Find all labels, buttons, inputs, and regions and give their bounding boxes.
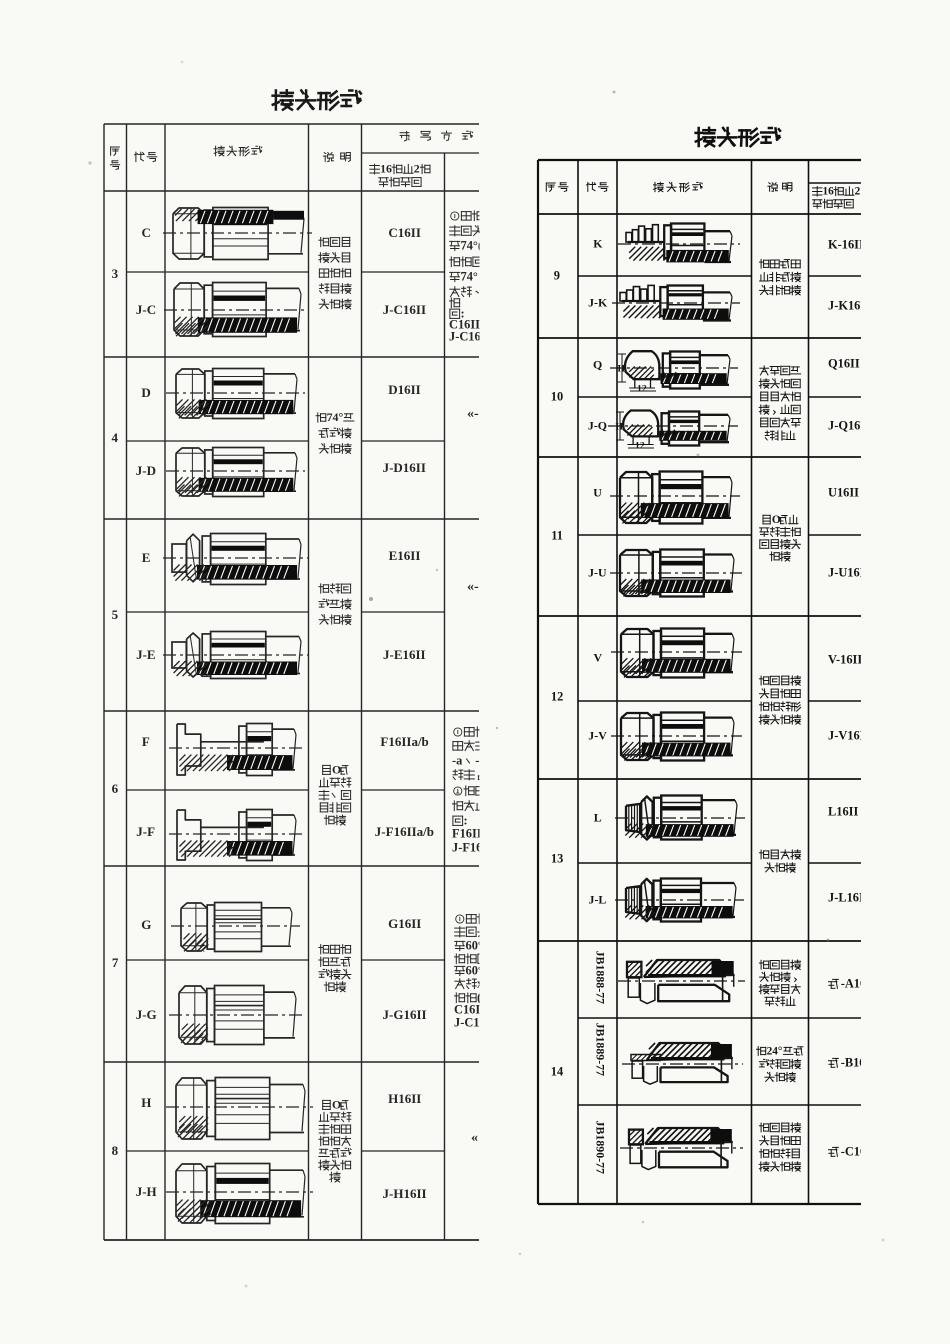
svg-text:J-V: J-V xyxy=(588,729,607,743)
svg-text:J-C16II: J-C16II xyxy=(383,302,426,317)
svg-text:3: 3 xyxy=(112,266,119,281)
svg-text:74°(: 74°( xyxy=(461,238,482,252)
svg-text:J-G: J-G xyxy=(136,1007,157,1022)
svg-text:10: 10 xyxy=(551,390,563,404)
svg-text:J-C16(: J-C16( xyxy=(449,329,485,343)
svg-text:J-Q16II: J-Q16II xyxy=(828,419,870,433)
svg-text:V-16II: V-16II xyxy=(828,653,862,667)
svg-text:«-: «- xyxy=(467,580,479,595)
svg-text:JB1889-77: JB1889-77 xyxy=(594,1023,608,1077)
svg-text:F: F xyxy=(142,734,150,749)
svg-text:74°: 74° xyxy=(327,410,344,424)
svg-text:K: K xyxy=(593,237,603,251)
svg-text:E: E xyxy=(142,550,151,565)
svg-text:-: - xyxy=(475,753,479,767)
svg-text:16: 16 xyxy=(823,186,835,198)
svg-text:K-16II: K-16II xyxy=(828,238,864,252)
svg-text:J-F: J-F xyxy=(136,824,155,839)
svg-text:60°: 60° xyxy=(466,963,483,977)
svg-text:J-L16II: J-L16II xyxy=(828,891,869,905)
svg-text:J-H: J-H xyxy=(136,1184,157,1199)
svg-text:G: G xyxy=(141,917,151,932)
svg-text:12: 12 xyxy=(551,690,563,704)
svg-text:O: O xyxy=(332,1098,341,1112)
svg-text:12: 12 xyxy=(635,440,645,451)
svg-text:J-K16II: J-K16II xyxy=(828,299,870,313)
svg-text:2: 2 xyxy=(855,186,861,198)
svg-text:-C16II: -C16II xyxy=(841,1145,876,1159)
svg-text:11: 11 xyxy=(551,529,563,543)
svg-text:D: D xyxy=(141,385,150,400)
svg-text:C: C xyxy=(142,225,151,240)
svg-text:Q16II: Q16II xyxy=(828,357,860,371)
svg-text:Q: Q xyxy=(593,358,602,372)
svg-text:16: 16 xyxy=(380,162,392,176)
svg-text:C16II: C16II xyxy=(388,225,421,240)
svg-text:H: H xyxy=(141,1095,151,1110)
svg-text:U16II: U16II xyxy=(828,486,859,500)
svg-text:J-H16II: J-H16II xyxy=(383,1186,427,1201)
svg-text:V: V xyxy=(594,651,603,665)
svg-text:L16II: L16II xyxy=(828,805,858,819)
svg-text:U: U xyxy=(593,486,602,500)
svg-text:J-F16: J-F16 xyxy=(452,840,482,854)
svg-text:J-E: J-E xyxy=(136,647,156,662)
svg-text:J-C1(: J-C1( xyxy=(454,1015,484,1029)
svg-text:O: O xyxy=(332,763,341,777)
svg-text:2: 2 xyxy=(414,162,420,176)
svg-text:J-Q: J-Q xyxy=(588,419,607,433)
svg-text:J-D16II: J-D16II xyxy=(383,460,426,475)
svg-text:60°(: 60°( xyxy=(466,938,487,952)
svg-text:JB1890-77: JB1890-77 xyxy=(594,1121,608,1175)
svg-text:5: 5 xyxy=(112,607,119,622)
svg-text:13: 13 xyxy=(551,852,563,866)
svg-text:F16II: F16II xyxy=(452,826,482,840)
svg-text:J-C: J-C xyxy=(136,302,156,317)
svg-text:J-V16II: J-V16II xyxy=(828,729,869,743)
svg-text:J-E16II: J-E16II xyxy=(383,647,426,662)
svg-text:J-L: J-L xyxy=(589,893,607,907)
svg-text::: : xyxy=(464,813,468,827)
svg-text:6: 6 xyxy=(112,781,119,796)
svg-text:74°: 74° xyxy=(461,269,478,283)
svg-text:14: 14 xyxy=(551,1065,563,1079)
svg-text:-A16II: -A16II xyxy=(841,977,876,991)
svg-text:4: 4 xyxy=(112,430,119,445)
svg-text:E16II: E16II xyxy=(389,548,421,563)
svg-text:7: 7 xyxy=(112,955,119,970)
svg-text:C16II(: C16II( xyxy=(454,1002,489,1016)
svg-text:G16II: G16II xyxy=(388,916,421,931)
svg-text:«: « xyxy=(471,1131,478,1146)
svg-text:J-U16II: J-U16II xyxy=(828,566,869,580)
svg-text:J-D: J-D xyxy=(136,463,156,478)
svg-text:H16II: H16II xyxy=(388,1091,421,1106)
svg-text:J-U: J-U xyxy=(588,566,607,580)
svg-text:x: x xyxy=(477,976,484,990)
svg-text:J-K: J-K xyxy=(588,296,608,310)
svg-text:D16II: D16II xyxy=(388,382,421,397)
svg-text:«-: «- xyxy=(467,407,479,422)
svg-text:8: 8 xyxy=(112,1143,119,1158)
svg-text:-a: -a xyxy=(452,753,462,767)
svg-text:9: 9 xyxy=(554,269,560,283)
svg-text:O: O xyxy=(772,514,781,526)
svg-text:J-F16IIa/b: J-F16IIa/b xyxy=(375,824,434,839)
svg-text:JB1888-77: JB1888-77 xyxy=(594,951,608,1005)
svg-text:12: 12 xyxy=(637,383,647,394)
svg-text:-B16II: -B16II xyxy=(841,1056,876,1070)
svg-text:F16IIa/b: F16IIa/b xyxy=(380,734,428,749)
svg-text:24°: 24° xyxy=(767,1045,783,1057)
svg-text:L: L xyxy=(594,811,602,825)
svg-text:J-G16II: J-G16II xyxy=(383,1007,427,1022)
